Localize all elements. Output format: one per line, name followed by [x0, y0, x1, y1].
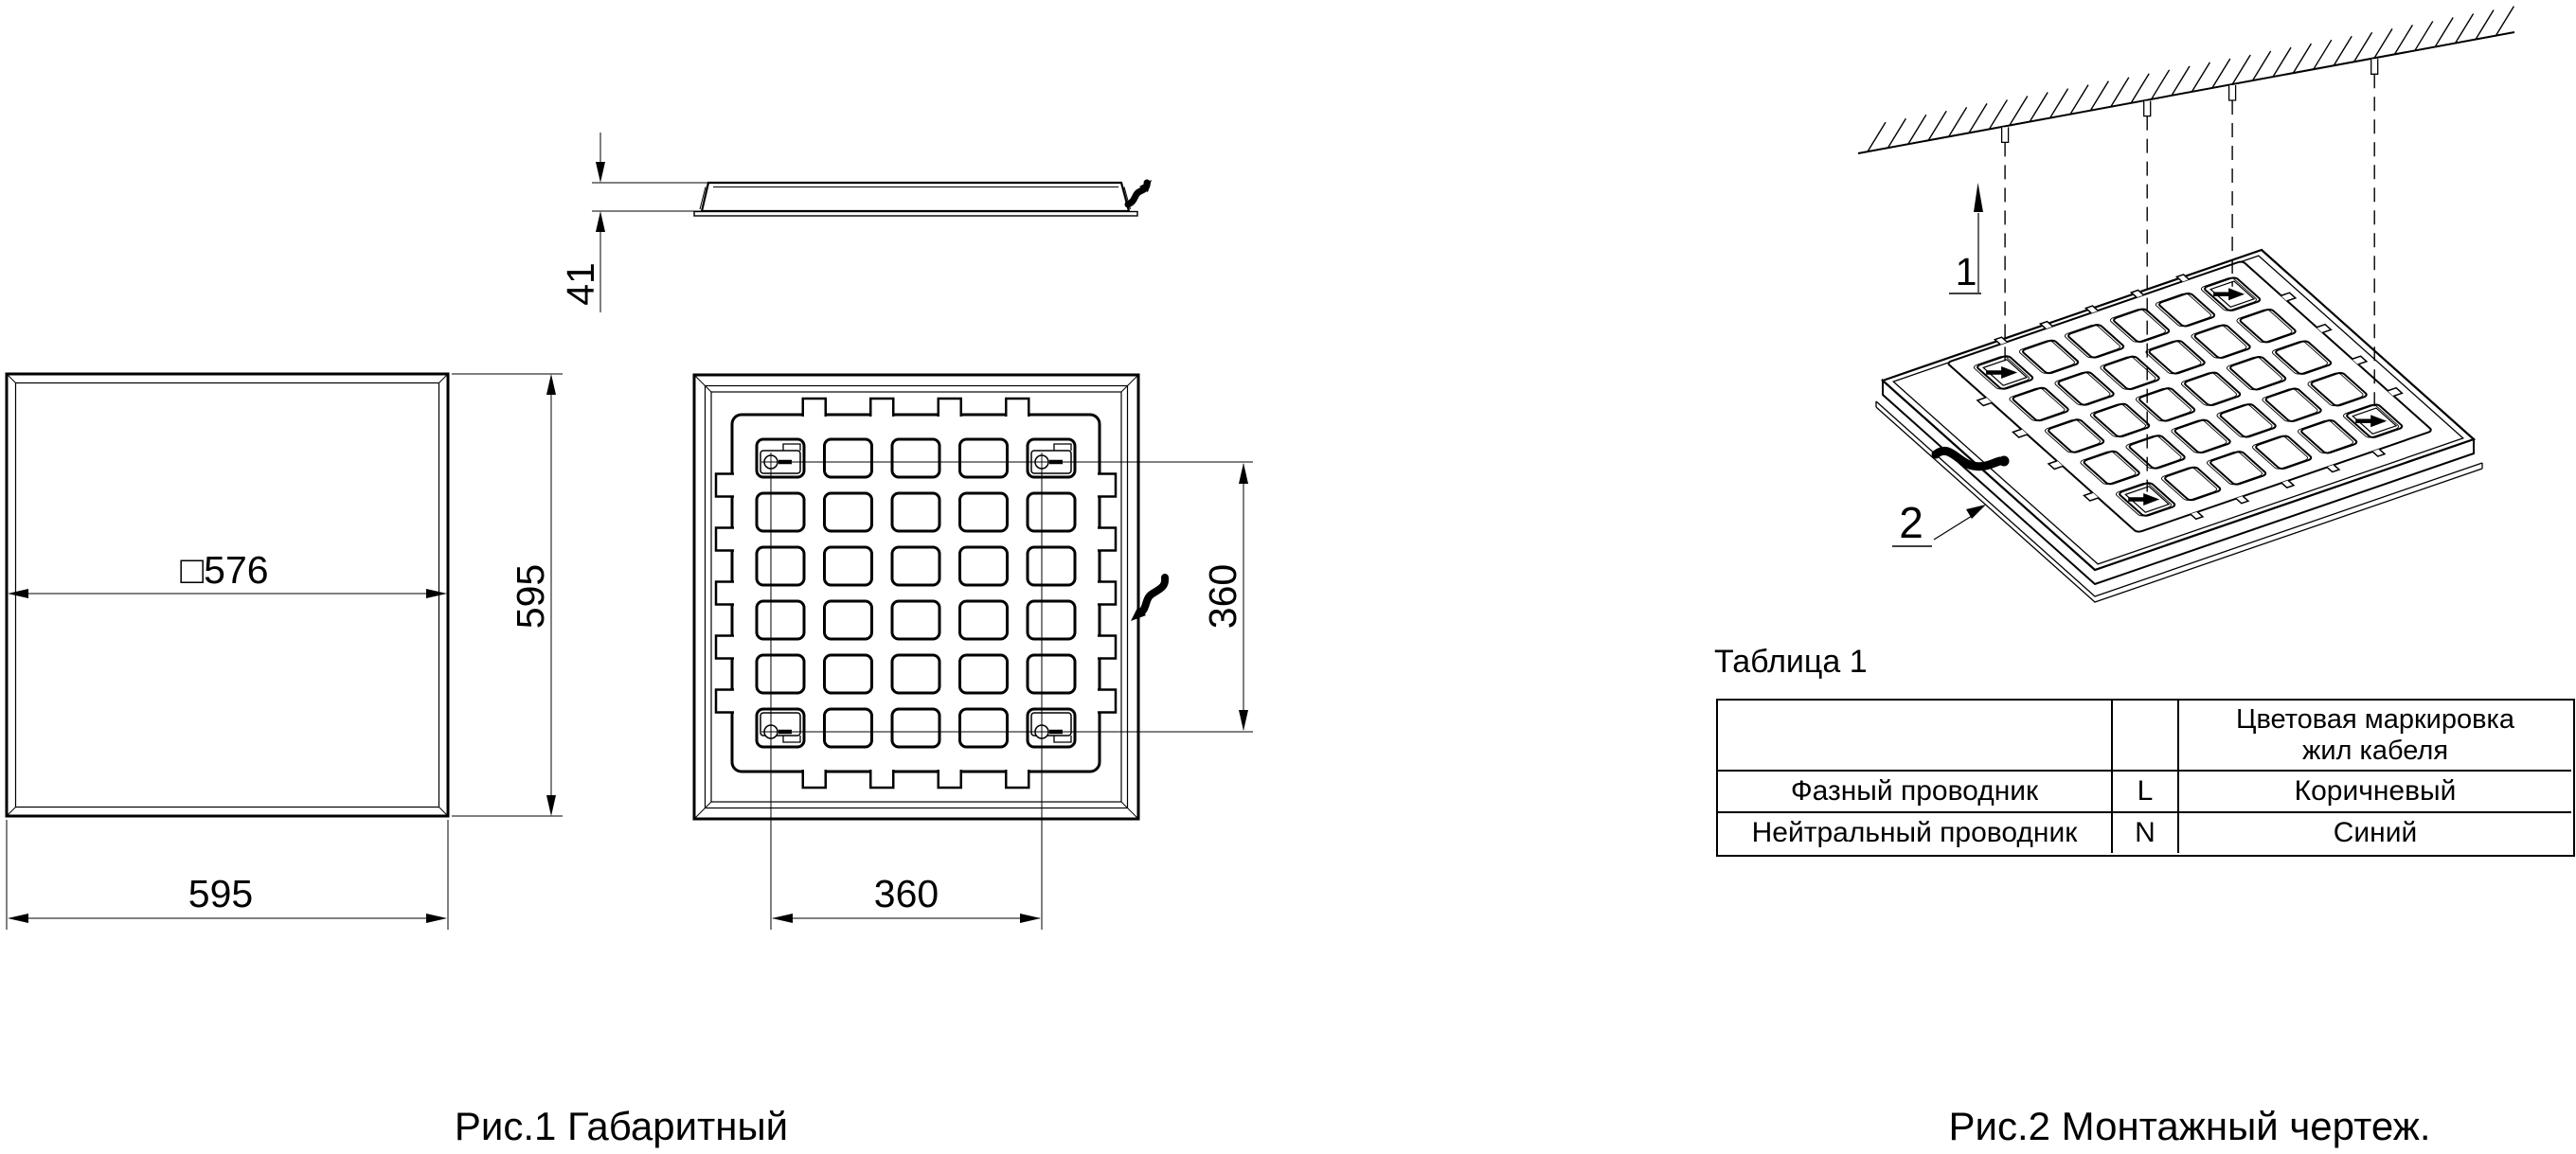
- hatch-stroke: [2456, 14, 2474, 44]
- lattice-hole: [825, 655, 872, 693]
- dim-arrow: [772, 914, 793, 923]
- lattice-hole: [1028, 601, 1075, 639]
- hatch-stroke: [2111, 78, 2129, 107]
- lattice-hole: [892, 655, 939, 693]
- dim-mount-spacing-h: 360: [874, 872, 939, 915]
- ceiling-line: [1858, 32, 2514, 153]
- panel-front-outline: [7, 374, 448, 816]
- lattice-tab: [716, 474, 734, 497]
- lattice-tab: [716, 690, 734, 713]
- dim-arrow: [1020, 914, 1041, 923]
- hatch-stroke: [2232, 55, 2250, 84]
- lattice-tab: [803, 399, 826, 417]
- table-cell-color: Коричневый: [2179, 772, 2571, 813]
- hatch-stroke: [2415, 21, 2433, 50]
- anchor-pin: [2371, 59, 2378, 74]
- lattice-hole: [1028, 439, 1075, 477]
- hatch-stroke: [2435, 17, 2453, 46]
- hatch-stroke: [1887, 118, 1905, 148]
- hatch-stroke: [2314, 40, 2332, 69]
- hatch-stroke: [2131, 74, 2149, 103]
- dim-height: 595: [509, 564, 552, 629]
- ceiling-hatching: [1868, 7, 2513, 152]
- lattice-tab: [1098, 528, 1116, 551]
- lattice-tab: [1098, 690, 1116, 713]
- diffuser-plate: [694, 212, 1137, 217]
- figure2-caption: Рис.2 Монтажный чертеж.: [1947, 1104, 2432, 1149]
- lattice-hole: [1028, 547, 1075, 585]
- dim-arrow: [1239, 710, 1248, 731]
- hatch-stroke: [1928, 111, 1946, 140]
- lattice-hole: [960, 439, 1008, 477]
- lattice-hole: [757, 601, 804, 639]
- lattice-hole: [960, 709, 1008, 747]
- table-header-cell: Цветовая маркировка жил кабеля: [2179, 701, 2571, 772]
- lattice-hole: [757, 493, 804, 531]
- lattice-tab: [939, 399, 961, 417]
- side-view: 41: [559, 133, 1152, 312]
- dim-arrow: [426, 914, 447, 923]
- lattice-hole: [825, 601, 872, 639]
- dim-width: 595: [188, 872, 253, 915]
- dim-arrow: [8, 914, 28, 923]
- lattice-hole: [1028, 655, 1075, 693]
- hatch-stroke: [2030, 93, 2048, 122]
- dim-arrow: [596, 211, 605, 232]
- hatch-stroke: [1908, 115, 1926, 144]
- lattice-hole: [892, 709, 939, 747]
- anchor-pin: [2229, 85, 2236, 100]
- lattice-hole: [757, 439, 804, 477]
- table-header-cell: [1718, 701, 2113, 772]
- lattice-hole: [1028, 709, 1075, 747]
- lattice-tab: [1006, 770, 1029, 788]
- hatch-stroke: [2495, 7, 2513, 36]
- hatch-stroke: [1868, 122, 1886, 151]
- lattice-tab: [939, 770, 961, 788]
- hatch-stroke: [2191, 62, 2209, 92]
- figure1-caption: Рис.1 Габаритный чертеж.: [379, 1104, 864, 1154]
- lattice-hole: [960, 547, 1008, 585]
- hatch-stroke: [2273, 47, 2291, 77]
- lattice-tab: [1098, 582, 1116, 605]
- table-cell-name: Фазный проводник: [1718, 772, 2113, 813]
- table-title: Таблица 1: [1714, 644, 1868, 681]
- hatch-stroke: [1969, 103, 1987, 133]
- hatch-stroke: [1949, 107, 1967, 136]
- lattice-tab: [1098, 636, 1116, 659]
- lattice-hole: [892, 547, 939, 585]
- lattice-hole: [757, 655, 804, 693]
- front-view: □576 595 595: [7, 374, 563, 930]
- lattice-tab: [870, 770, 893, 788]
- lattice-hole: [825, 493, 872, 531]
- back-lattice: [716, 399, 1116, 788]
- lattice-hole: [757, 709, 804, 747]
- dim-arrow: [1239, 463, 1248, 484]
- anchor-pin: [2144, 101, 2151, 116]
- hatch-stroke: [2374, 28, 2392, 58]
- hatch-stroke: [2334, 36, 2352, 65]
- table-cell-code: L: [2113, 772, 2179, 813]
- table-cell-code: N: [2113, 813, 2179, 853]
- callout-1-label: 1: [1956, 250, 1977, 293]
- back-view: 360 360: [694, 375, 1253, 930]
- lattice-tab: [716, 636, 734, 659]
- lattice-tab: [716, 582, 734, 605]
- lattice-tab: [870, 399, 893, 417]
- technical-drawing-page: □576 595 595 41: [0, 0, 2576, 1154]
- hatch-stroke: [2050, 89, 2068, 118]
- callout-1-arrow: [1974, 183, 1983, 212]
- lattice-hole: [960, 655, 1008, 693]
- dim-mount-spacing-v: 360: [1201, 564, 1244, 629]
- hatch-stroke: [1989, 99, 2007, 129]
- dim-inner-size: □576: [180, 548, 268, 592]
- dim-arrow: [546, 374, 556, 395]
- hatch-stroke: [2212, 59, 2230, 88]
- lattice-hole: [1028, 493, 1075, 531]
- hatch-stroke: [2253, 51, 2271, 80]
- cable-icon: [1139, 577, 1165, 613]
- lattice-tab: [1098, 474, 1116, 497]
- lattice-hole: [892, 493, 939, 531]
- drawing-canvas: □576 595 595 41: [0, 0, 2576, 1154]
- lattice-hole: [825, 709, 872, 747]
- hatch-stroke: [2476, 10, 2494, 40]
- dim-thickness: 41: [559, 262, 602, 306]
- lattice-hole: [825, 547, 872, 585]
- dim-arrow: [546, 795, 556, 816]
- iso-view: 1 2: [1858, 7, 2514, 602]
- dim-arrow: [596, 162, 605, 183]
- lattice-tab: [716, 528, 734, 551]
- lattice-hole: [825, 439, 872, 477]
- hatch-stroke: [2010, 96, 2028, 125]
- lattice-tab: [1006, 399, 1029, 417]
- cable-marking-table: Цветовая маркировка жил кабеля Фазный пр…: [1716, 699, 2575, 857]
- table-cell-color: Синий: [2179, 813, 2571, 853]
- callout-2-leader: [1934, 516, 1972, 540]
- table-header-line2: жил кабеля: [2302, 736, 2448, 767]
- hatch-stroke: [2152, 70, 2170, 99]
- lattice-hole: [960, 601, 1008, 639]
- hatch-stroke: [2172, 66, 2190, 96]
- cable-gland: [1999, 456, 2010, 467]
- anchor-pin: [2002, 127, 2009, 142]
- lattice-tab: [803, 770, 826, 788]
- lattice-hole: [892, 439, 939, 477]
- hatch-stroke: [2354, 32, 2372, 62]
- lattice-hole: [757, 547, 804, 585]
- hatch-stroke: [2070, 85, 2088, 115]
- callout-2-arrow: [1966, 505, 1986, 519]
- table-header-line1: Цветовая маркировка: [2236, 704, 2514, 736]
- hatch-stroke: [2090, 81, 2108, 111]
- hatch-stroke: [2394, 25, 2412, 54]
- lattice-hole: [892, 601, 939, 639]
- lattice-hole: [960, 493, 1008, 531]
- table-header-cell: [2113, 701, 2179, 772]
- callout-2-label: 2: [1899, 498, 1923, 547]
- table-cell-name: Нейтральный проводник: [1718, 813, 2113, 853]
- hatch-stroke: [2293, 44, 2311, 73]
